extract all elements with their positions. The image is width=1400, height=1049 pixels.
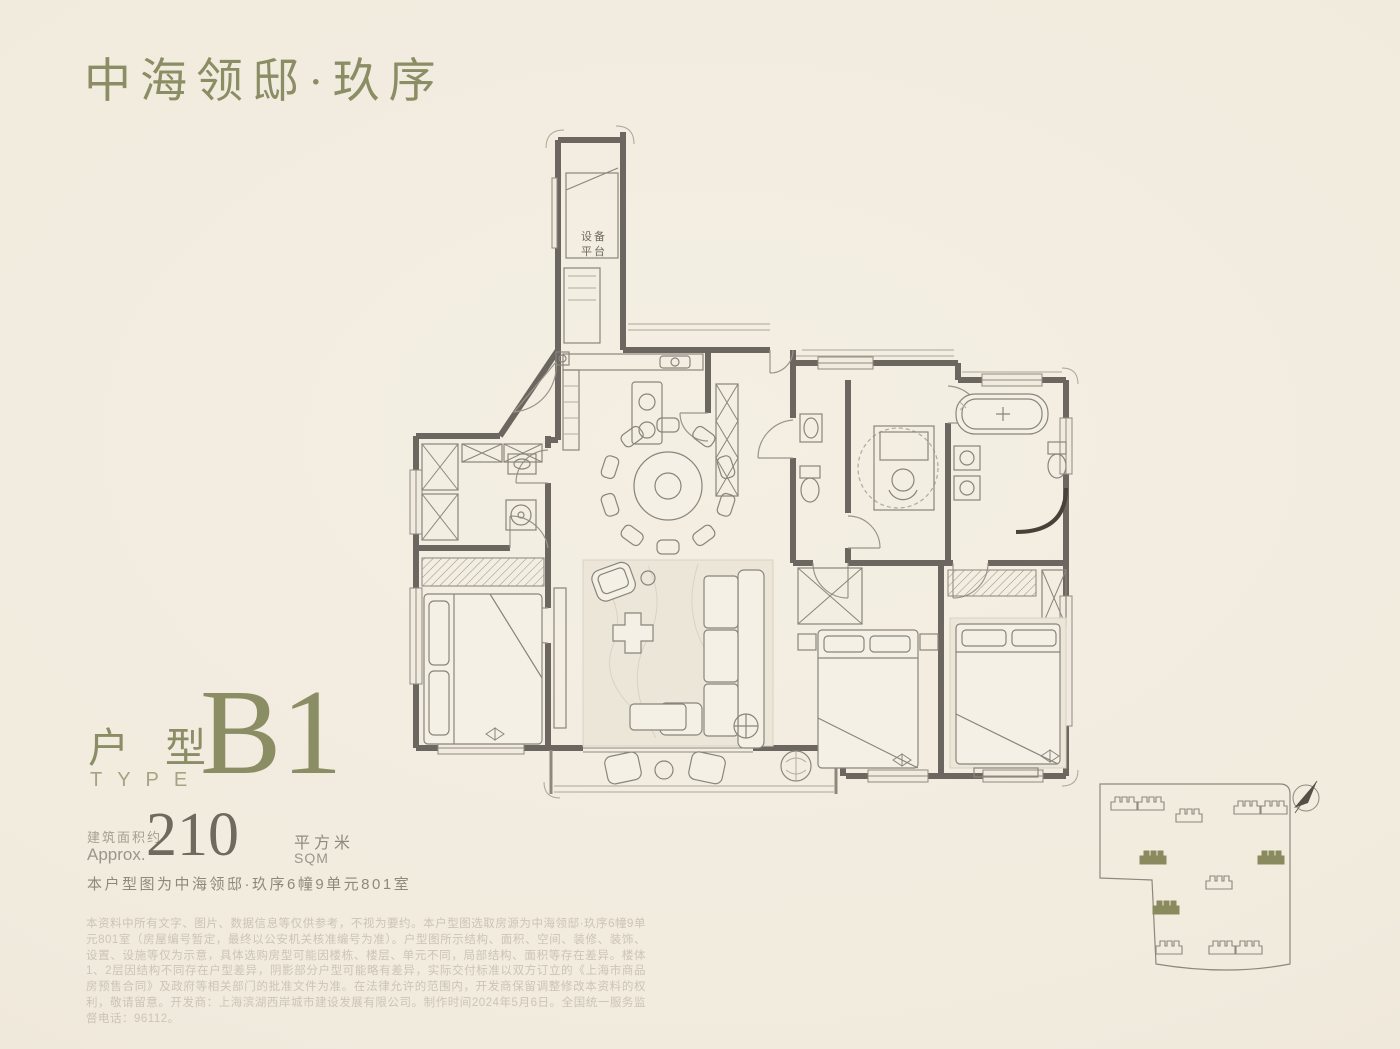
- study: [858, 426, 938, 510]
- toilet: [801, 478, 819, 502]
- floor-plan: 设备 平台: [398, 118, 1093, 808]
- site-building-highlighted: [1140, 851, 1166, 864]
- site-building-highlighted: [1153, 901, 1179, 914]
- area-label-en: Approx.: [87, 845, 146, 865]
- site-building: [1176, 809, 1202, 822]
- bathroom-small: [800, 414, 822, 502]
- bed-master: [956, 624, 1060, 764]
- master-bedroom: [948, 570, 1066, 777]
- equipment-platform-label: 设备: [581, 229, 607, 243]
- site-building: [1156, 941, 1182, 954]
- coffee-table: [630, 704, 686, 730]
- tv-console: [554, 588, 566, 728]
- bathroom-master: [954, 394, 1066, 500]
- site-plan: [1088, 768, 1336, 1006]
- poster-background: 中海领邸·玖序: [0, 0, 1400, 1049]
- project-title: 中海领邸·玖序: [84, 42, 445, 111]
- equipment-platform: 设备 平台: [552, 168, 618, 365]
- bedroom-left: [422, 444, 544, 744]
- living-room: [554, 560, 773, 748]
- site-building-highlighted: [1258, 851, 1284, 864]
- area-value: 210: [146, 804, 239, 866]
- bed-2: [818, 630, 918, 768]
- stove: [632, 382, 662, 444]
- shower-screen: [1016, 488, 1066, 532]
- plant: [781, 751, 811, 781]
- bedroom-2: [798, 568, 938, 768]
- area-unit-en: SQM: [294, 850, 329, 866]
- type-code: B1: [200, 672, 342, 794]
- site-building: [1111, 797, 1137, 810]
- desk-chair: [892, 469, 914, 491]
- wardrobe-master: [948, 570, 1036, 596]
- wardrobe: [422, 558, 544, 586]
- equipment-platform-label-2: 平台: [581, 244, 607, 258]
- location-note: 本户型图为中海领邸·玖序6幢9单元801室: [87, 873, 411, 894]
- compass-north-icon: [1293, 781, 1319, 813]
- site-building: [1261, 801, 1287, 814]
- type-label-en: TYPE: [90, 769, 202, 792]
- disclaimer-text: 本资料中所有文字、图片、数据信息等仅供参考，不视为要约。本户型图选取房源为中海领…: [86, 917, 646, 1028]
- floor-lamp: [734, 714, 758, 738]
- study-rug: [858, 428, 938, 508]
- site-building: [1236, 941, 1262, 954]
- bed-left: [424, 594, 542, 744]
- site-building: [1209, 941, 1235, 954]
- site-building: [1234, 801, 1260, 814]
- balcony: [603, 751, 811, 786]
- site-building: [1206, 876, 1232, 889]
- site-building: [1138, 797, 1164, 810]
